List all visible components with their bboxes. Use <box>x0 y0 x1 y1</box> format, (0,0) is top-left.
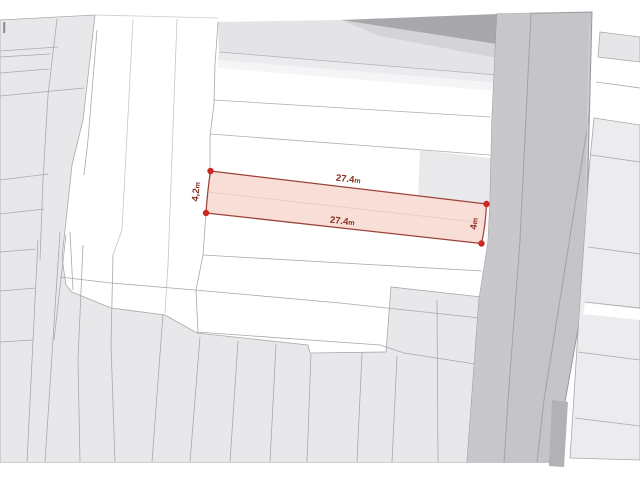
svg-text:4,2m: 4,2m <box>190 181 203 202</box>
svg-text:4m: 4m <box>468 217 480 230</box>
